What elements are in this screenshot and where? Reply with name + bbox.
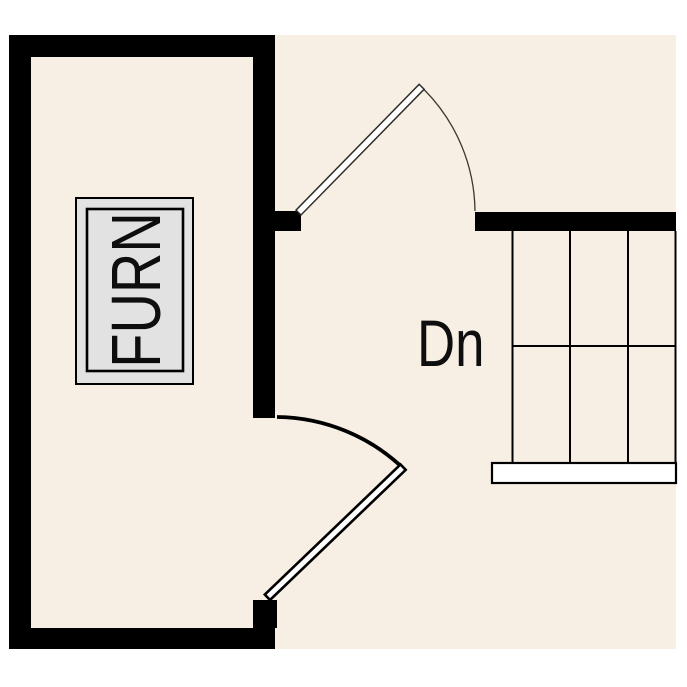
wall-left xyxy=(9,35,31,649)
wall-right-upper xyxy=(253,35,275,418)
stair-landing xyxy=(492,463,676,483)
furnace: FURN xyxy=(76,198,193,384)
wall-top xyxy=(9,35,275,57)
stair-head-wall xyxy=(475,212,676,231)
furnace-label: FURN xyxy=(98,212,175,368)
wall-bottom xyxy=(9,628,275,649)
floor-plan-canvas: FURN Dn xyxy=(0,0,687,687)
floor-plan-page: FURN Dn xyxy=(0,0,687,687)
door-jamb-top xyxy=(275,211,301,231)
door-jamb-bottom xyxy=(253,600,277,628)
stairs-down-label: Dn xyxy=(417,306,484,380)
